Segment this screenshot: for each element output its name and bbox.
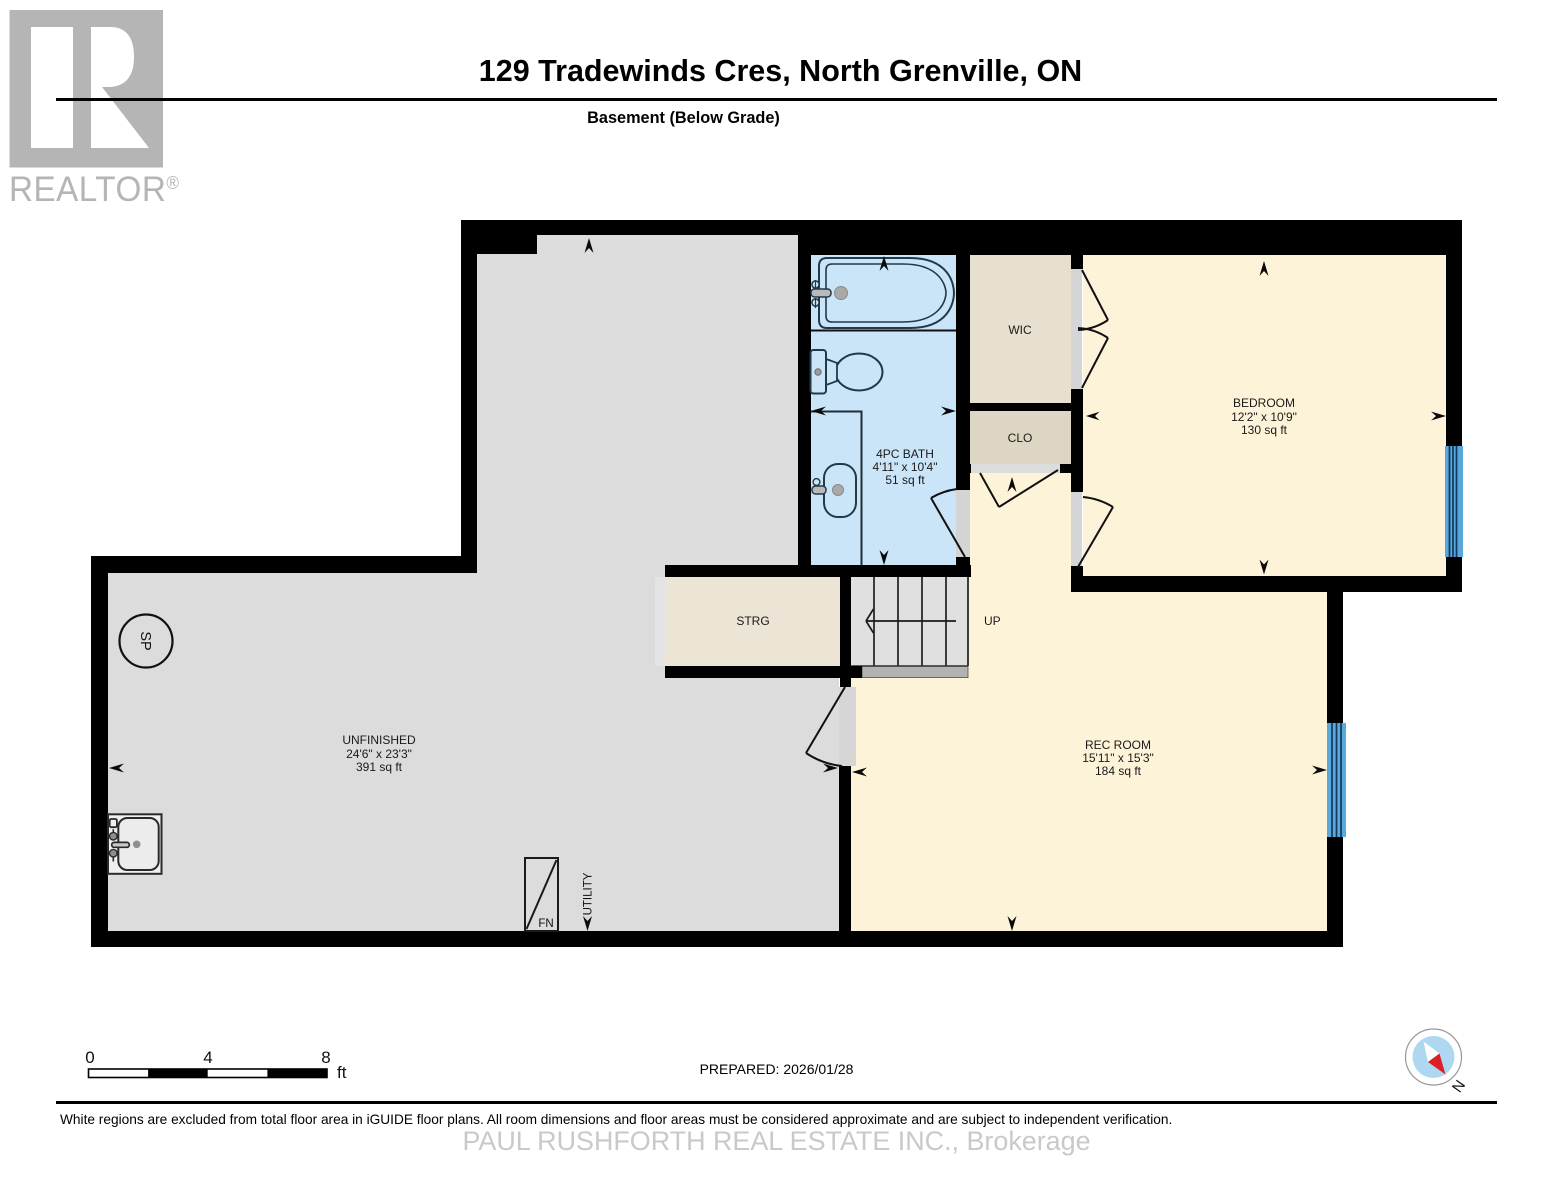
svg-text:UTILITY: UTILITY xyxy=(583,872,595,915)
svg-text:130 sq ft: 130 sq ft xyxy=(1241,423,1288,437)
svg-text:391 sq ft: 391 sq ft xyxy=(356,760,403,774)
svg-text:REC ROOM: REC ROOM xyxy=(1085,738,1151,752)
svg-text:FN: FN xyxy=(538,918,553,930)
svg-text:12'2" x 10'9": 12'2" x 10'9" xyxy=(1231,410,1297,424)
svg-text:WIC: WIC xyxy=(1008,323,1032,337)
svg-text:51 sq ft: 51 sq ft xyxy=(885,473,925,487)
svg-text:15'11" x 15'3": 15'11" x 15'3" xyxy=(1082,751,1154,765)
svg-text:CLO: CLO xyxy=(1008,431,1033,445)
svg-text:184 sq ft: 184 sq ft xyxy=(1095,764,1142,778)
svg-text:24'6" x 23'3": 24'6" x 23'3" xyxy=(346,747,412,761)
svg-text:SP: SP xyxy=(137,631,153,650)
svg-text:4'11" x 10'4": 4'11" x 10'4" xyxy=(873,460,938,474)
svg-text:BEDROOM: BEDROOM xyxy=(1233,396,1295,410)
svg-text:STRG: STRG xyxy=(736,614,769,628)
svg-text:UNFINISHED: UNFINISHED xyxy=(342,733,416,747)
svg-text:4PC BATH: 4PC BATH xyxy=(876,447,934,461)
svg-text:UP: UP xyxy=(984,614,1001,628)
